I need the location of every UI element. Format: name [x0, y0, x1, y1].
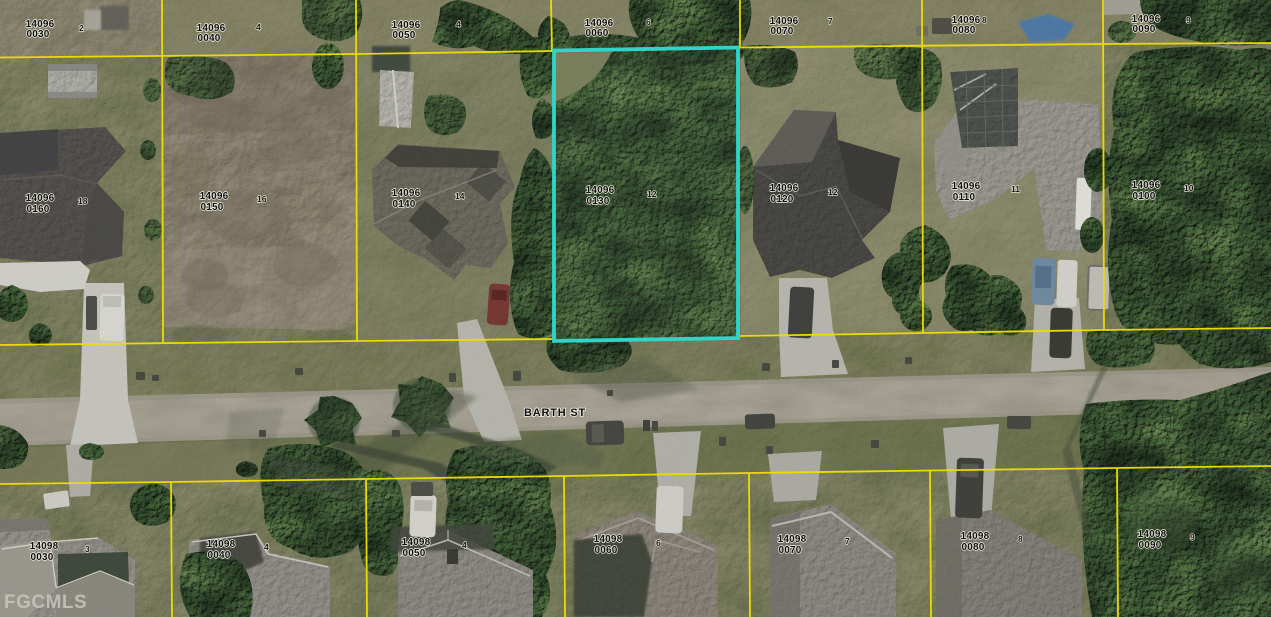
svg-text:8: 8: [1018, 534, 1023, 544]
svg-text:14096: 14096: [392, 188, 421, 199]
svg-text:14096: 14096: [770, 183, 799, 194]
svg-text:0160: 0160: [26, 204, 49, 215]
svg-text:4: 4: [456, 19, 461, 29]
svg-text:0030: 0030: [26, 29, 49, 40]
svg-text:0070: 0070: [778, 545, 801, 556]
svg-text:12: 12: [828, 187, 838, 197]
svg-text:0040: 0040: [207, 550, 230, 561]
svg-text:14098: 14098: [594, 534, 623, 545]
svg-text:0060: 0060: [594, 545, 617, 556]
svg-text:0040: 0040: [197, 33, 220, 44]
svg-text:14098: 14098: [778, 534, 807, 545]
svg-text:0050: 0050: [402, 548, 425, 559]
svg-text:0150: 0150: [200, 202, 223, 213]
svg-text:14096: 14096: [200, 191, 229, 202]
svg-text:11: 11: [1011, 184, 1020, 194]
svg-text:14: 14: [455, 191, 465, 201]
svg-text:14096: 14096: [952, 181, 981, 192]
svg-text:0060: 0060: [585, 28, 608, 39]
svg-text:8: 8: [982, 15, 987, 25]
svg-text:14098: 14098: [1138, 529, 1167, 540]
svg-text:10: 10: [1184, 183, 1194, 193]
svg-text:9: 9: [1190, 532, 1195, 542]
svg-text:0030: 0030: [30, 552, 53, 563]
svg-text:0080: 0080: [952, 25, 975, 36]
svg-text:0130: 0130: [586, 196, 609, 207]
svg-text:7: 7: [828, 16, 833, 26]
svg-text:0070: 0070: [770, 26, 793, 37]
svg-text:9: 9: [1186, 15, 1191, 25]
svg-text:0080: 0080: [961, 542, 984, 553]
svg-text:18: 18: [78, 196, 88, 206]
svg-text:14098: 14098: [402, 537, 431, 548]
svg-text:0050: 0050: [392, 30, 415, 41]
svg-text:14098: 14098: [207, 539, 236, 550]
svg-text:2: 2: [79, 23, 84, 33]
svg-text:7: 7: [845, 536, 850, 546]
svg-text:0100: 0100: [1132, 191, 1155, 202]
svg-text:14096: 14096: [26, 193, 55, 204]
svg-text:16: 16: [257, 194, 267, 204]
svg-text:14098: 14098: [961, 531, 990, 542]
svg-text:0090: 0090: [1132, 24, 1155, 35]
svg-text:4: 4: [462, 540, 467, 550]
svg-text:BARTH ST: BARTH ST: [524, 407, 586, 419]
svg-text:0120: 0120: [770, 194, 793, 205]
svg-text:14096: 14096: [1132, 180, 1161, 191]
svg-text:0140: 0140: [392, 199, 415, 210]
svg-text:3: 3: [85, 544, 90, 554]
svg-text:14098: 14098: [30, 541, 59, 552]
svg-text:12: 12: [647, 189, 657, 199]
svg-text:14096: 14096: [586, 185, 615, 196]
svg-text:0090: 0090: [1138, 540, 1161, 551]
svg-text:FGCMLS: FGCMLS: [4, 592, 87, 613]
svg-text:6: 6: [656, 538, 661, 548]
svg-text:4: 4: [264, 542, 269, 552]
svg-text:0110: 0110: [953, 192, 976, 203]
svg-text:6: 6: [646, 17, 651, 27]
svg-text:4: 4: [256, 22, 261, 32]
